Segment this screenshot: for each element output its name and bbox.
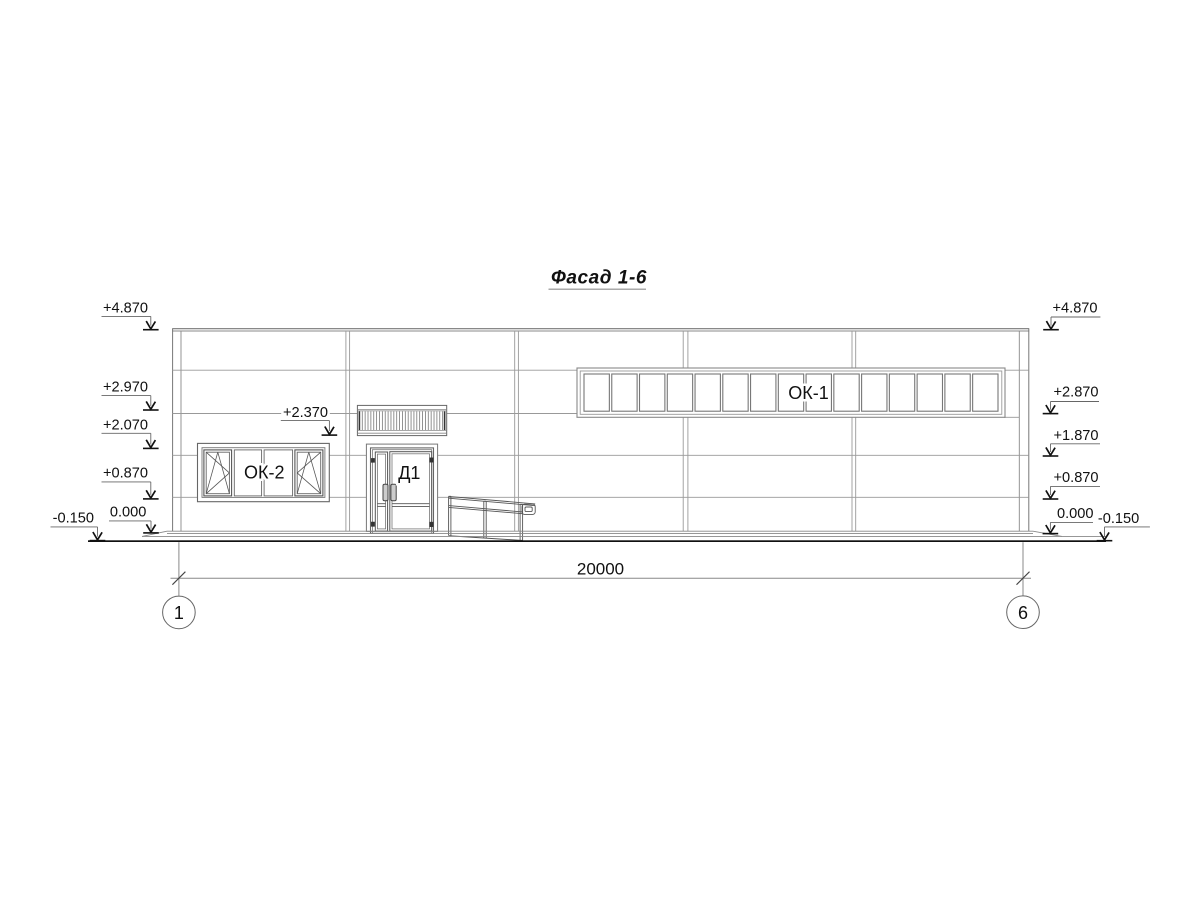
svg-text:+4.870: +4.870 [103,301,148,317]
svg-text:-0.150: -0.150 [53,510,94,526]
svg-text:0.000: 0.000 [110,504,147,520]
svg-text:Фасад 1-6: Фасад 1-6 [551,268,647,289]
svg-text:+4.870: +4.870 [1053,301,1098,317]
svg-text:+2.370: +2.370 [283,405,328,421]
svg-text:+2.970: +2.970 [103,379,148,395]
svg-text:+0.870: +0.870 [103,465,148,481]
svg-text:+0.870: +0.870 [1054,470,1099,486]
svg-text:+2.870: +2.870 [1054,384,1099,400]
svg-text:+2.070: +2.070 [103,417,148,433]
svg-text:0.000: 0.000 [1057,506,1094,522]
svg-text:6: 6 [1018,603,1028,623]
svg-text:ОК-2: ОК-2 [244,463,285,483]
svg-text:+1.870: +1.870 [1054,428,1099,444]
svg-text:ОК-1: ОК-1 [788,383,829,403]
svg-text:20000: 20000 [577,560,624,579]
svg-text:Д1: Д1 [398,463,420,483]
svg-text:-0.150: -0.150 [1098,511,1139,527]
svg-text:1: 1 [174,603,184,623]
